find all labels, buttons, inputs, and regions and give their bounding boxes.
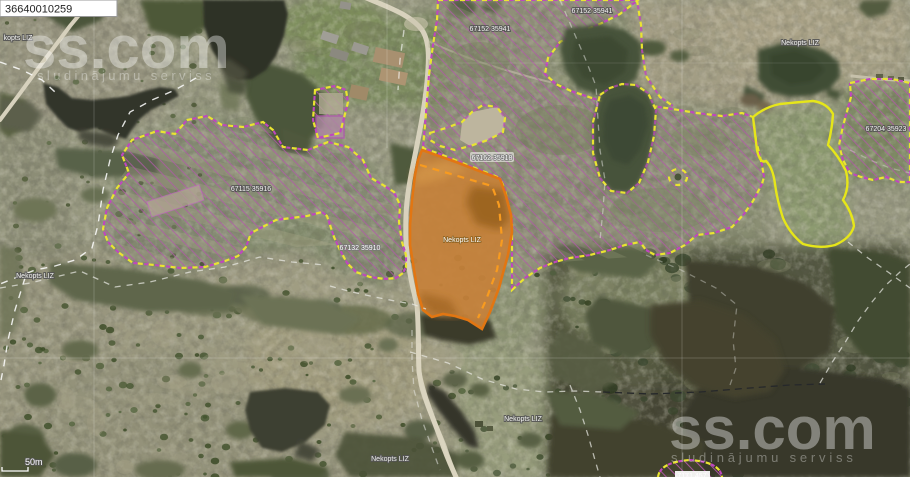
svg-text:Nekopts LIZ: Nekopts LIZ bbox=[443, 237, 481, 244]
svg-text:67204 35923: 67204 35923 bbox=[866, 126, 907, 133]
svg-text:50m: 50m bbox=[25, 457, 43, 467]
svg-text:67162 35918: 67162 35918 bbox=[472, 155, 513, 162]
svg-text:Nekopts LIZ: Nekopts LIZ bbox=[504, 416, 542, 423]
svg-text:67132 35910: 67132 35910 bbox=[340, 245, 381, 252]
svg-text:67115 35916: 67115 35916 bbox=[231, 186, 271, 193]
svg-text:sludinājumu serviss: sludinājumu serviss bbox=[37, 68, 215, 83]
svg-text:sludinājumu serviss: sludinājumu serviss bbox=[671, 450, 857, 465]
svg-text:67152 35941: 67152 35941 bbox=[470, 26, 511, 33]
svg-text:67152 35941: 67152 35941 bbox=[572, 8, 613, 15]
svg-text:Nekopts LIZ: Nekopts LIZ bbox=[781, 40, 819, 47]
svg-text:7171 457: 7171 457 bbox=[677, 473, 706, 477]
svg-text:Nekopts LIZ: Nekopts LIZ bbox=[371, 456, 409, 463]
svg-text:Nekopts LIZ: Nekopts LIZ bbox=[16, 273, 54, 280]
